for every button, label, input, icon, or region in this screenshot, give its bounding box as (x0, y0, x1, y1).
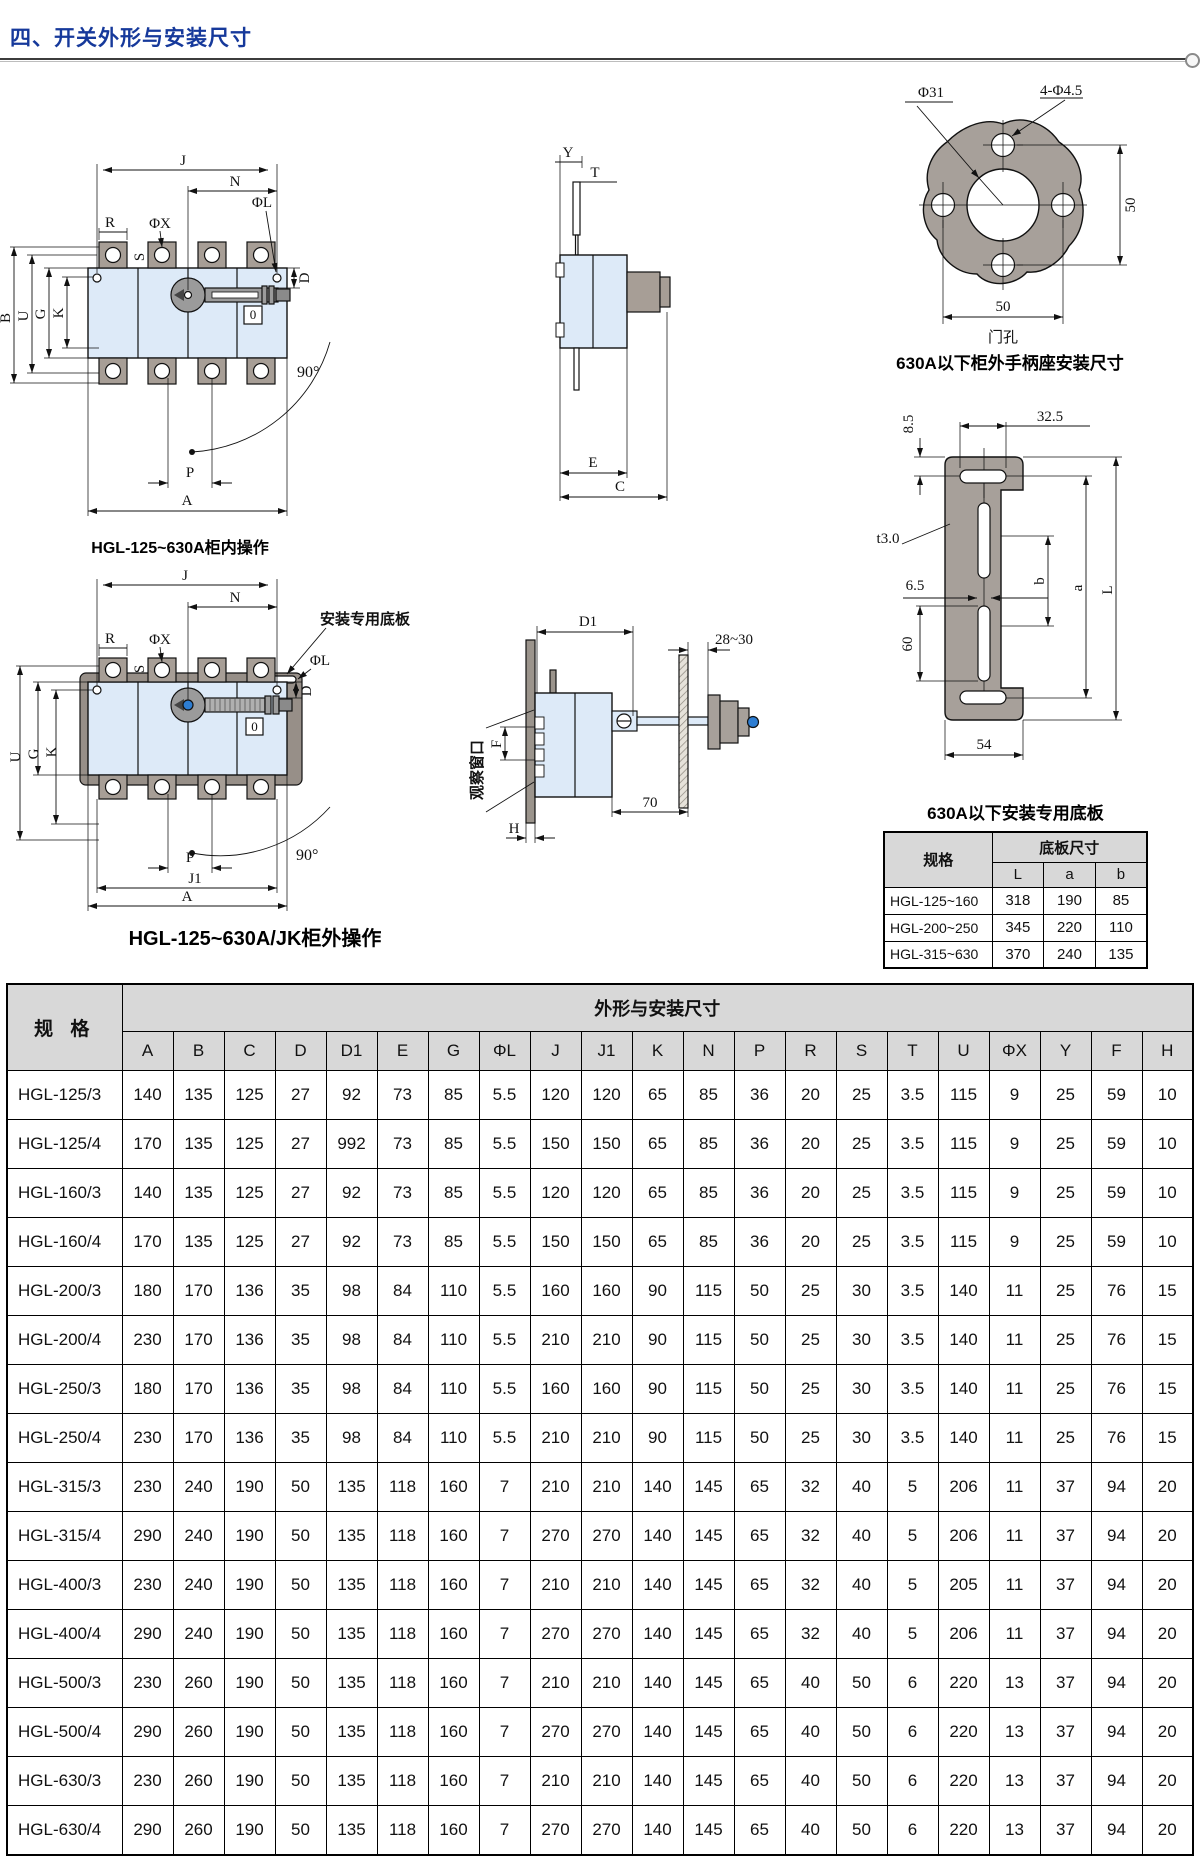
value-cell: 190 (224, 1463, 275, 1512)
spec-cell: HGL-630/4 (7, 1806, 122, 1855)
dim-E: E (588, 455, 597, 471)
column-header: N (683, 1032, 734, 1071)
value-cell: 3.5 (887, 1218, 938, 1267)
column-header: ΦX (989, 1032, 1040, 1071)
dim-J: J (180, 153, 186, 169)
value-cell: 6 (887, 1708, 938, 1757)
value-cell: 135 (1095, 941, 1147, 968)
value-cell: 6 (887, 1659, 938, 1708)
value-cell: 11 (989, 1365, 1040, 1414)
column-header: ΦL (479, 1032, 530, 1071)
value-cell: 115 (683, 1365, 734, 1414)
value-cell: 76 (1091, 1267, 1142, 1316)
value-cell: 9 (989, 1071, 1040, 1120)
column-header: a (1044, 862, 1096, 887)
table-row: HGL-160/4170135125279273855.515015065853… (7, 1218, 1193, 1267)
dim-G: G (33, 308, 49, 319)
column-header-dimensions: 外形与安装尺寸 (122, 984, 1193, 1032)
value-cell: 210 (530, 1463, 581, 1512)
value-cell: 210 (581, 1659, 632, 1708)
value-cell: 59 (1091, 1218, 1142, 1267)
value-cell: 270 (581, 1708, 632, 1757)
value-cell: 20 (785, 1120, 836, 1169)
dim-8-5: 8.5 (901, 415, 917, 434)
header-row-1: 规 格外形与安装尺寸 (7, 984, 1193, 1032)
dim-phiL: ΦL (252, 195, 272, 211)
mounting-plate-label: 安装专用底板 (320, 610, 411, 628)
value-cell: 7 (479, 1610, 530, 1659)
table-row: HGL-315/42902401905013511816072702701401… (7, 1512, 1193, 1561)
value-cell: 50 (275, 1708, 326, 1757)
value-cell: 90 (632, 1414, 683, 1463)
value-cell: 25 (1040, 1316, 1091, 1365)
value-cell: 25 (785, 1365, 836, 1414)
value-cell: 40 (836, 1512, 887, 1561)
value-cell: 20 (1142, 1757, 1193, 1806)
value-cell: 3.5 (887, 1071, 938, 1120)
table-row: HGL-500/42902601905013511816072702701401… (7, 1708, 1193, 1757)
value-cell: 65 (734, 1708, 785, 1757)
value-cell: 160 (530, 1365, 581, 1414)
dim-T: T (590, 165, 599, 181)
value-cell: 270 (581, 1806, 632, 1855)
value-cell: 25 (1040, 1414, 1091, 1463)
value-cell: 37 (1040, 1806, 1091, 1855)
value-cell: 20 (1142, 1708, 1193, 1757)
value-cell: 206 (938, 1463, 989, 1512)
value-cell: 145 (683, 1561, 734, 1610)
column-header: D (275, 1032, 326, 1071)
value-cell: 170 (122, 1218, 173, 1267)
value-cell: 76 (1091, 1414, 1142, 1463)
value-cell: 3.5 (887, 1414, 938, 1463)
value-cell: 94 (1091, 1659, 1142, 1708)
value-cell: 230 (122, 1316, 173, 1365)
value-cell: 5 (887, 1512, 938, 1561)
value-cell: 94 (1091, 1806, 1142, 1855)
value-cell: 50 (734, 1316, 785, 1365)
dim-J1: J1 (188, 871, 201, 887)
spec-cell: HGL-250/4 (7, 1414, 122, 1463)
value-cell: 50 (275, 1659, 326, 1708)
value-cell: 15 (1142, 1414, 1193, 1463)
column-header-size: 底板尺寸 (992, 832, 1147, 862)
dim-D: D (299, 685, 315, 696)
value-cell: 115 (683, 1267, 734, 1316)
value-cell: 145 (683, 1757, 734, 1806)
value-cell: 5 (887, 1561, 938, 1610)
value-cell: 110 (1095, 914, 1147, 941)
caption-incabinet: HGL-125~630A柜内操作 (55, 534, 305, 558)
value-cell: 135 (326, 1561, 377, 1610)
value-cell: 65 (734, 1610, 785, 1659)
value-cell: 136 (224, 1267, 275, 1316)
value-cell: 32 (785, 1610, 836, 1659)
value-cell: 290 (122, 1512, 173, 1561)
value-cell: 118 (377, 1757, 428, 1806)
value-cell: 25 (1040, 1365, 1091, 1414)
value-cell: 140 (938, 1267, 989, 1316)
value-cell: 7 (479, 1512, 530, 1561)
value-cell: 135 (326, 1512, 377, 1561)
value-cell: 270 (530, 1610, 581, 1659)
value-cell: 118 (377, 1806, 428, 1855)
dim-54: 54 (977, 737, 993, 753)
value-cell: 180 (122, 1267, 173, 1316)
value-cell: 290 (122, 1806, 173, 1855)
value-cell: 11 (989, 1561, 1040, 1610)
value-cell: 3.5 (887, 1316, 938, 1365)
value-cell: 90 (632, 1365, 683, 1414)
column-header: H (1142, 1032, 1193, 1071)
value-cell: 145 (683, 1610, 734, 1659)
value-cell: 37 (1040, 1610, 1091, 1659)
base-plate-table-title: 630A以下安装专用底板 (873, 799, 1158, 824)
value-cell: 94 (1091, 1708, 1142, 1757)
value-cell: 98 (326, 1316, 377, 1365)
value-cell: 115 (938, 1169, 989, 1218)
value-cell: 210 (581, 1757, 632, 1806)
caption-jk-outside: HGL-125~630A/JK柜外操作 (45, 922, 465, 951)
value-cell: 25 (785, 1267, 836, 1316)
value-cell: 11 (989, 1267, 1040, 1316)
value-cell: 9 (989, 1218, 1040, 1267)
spec-cell: HGL-125/3 (7, 1071, 122, 1120)
value-cell: 5.5 (479, 1169, 530, 1218)
table-row: HGL-200~250345220110 (884, 914, 1147, 941)
value-cell: 40 (785, 1708, 836, 1757)
value-cell: 118 (377, 1659, 428, 1708)
value-cell: 210 (530, 1316, 581, 1365)
value-cell: 140 (632, 1512, 683, 1561)
value-cell: 25 (1040, 1120, 1091, 1169)
value-cell: 92 (326, 1218, 377, 1267)
value-cell: 140 (632, 1659, 683, 1708)
value-cell: 59 (1091, 1120, 1142, 1169)
value-cell: 118 (377, 1463, 428, 1512)
value-cell: 270 (581, 1512, 632, 1561)
value-cell: 210 (581, 1561, 632, 1610)
value-cell: 73 (377, 1120, 428, 1169)
column-header: E (377, 1032, 428, 1071)
value-cell: 65 (734, 1659, 785, 1708)
value-cell: 160 (428, 1708, 479, 1757)
value-cell: 220 (1044, 914, 1096, 941)
value-cell: 85 (1095, 887, 1147, 914)
value-cell: 40 (836, 1463, 887, 1512)
value-cell: 85 (428, 1218, 479, 1267)
value-cell: 25 (836, 1169, 887, 1218)
value-cell: 27 (275, 1071, 326, 1120)
value-cell: 270 (581, 1610, 632, 1659)
value-cell: 50 (734, 1365, 785, 1414)
value-cell: 59 (1091, 1169, 1142, 1218)
value-cell: 125 (224, 1169, 275, 1218)
value-cell: 50 (275, 1463, 326, 1512)
dim-angle: 90° (296, 847, 318, 864)
value-cell: 140 (122, 1169, 173, 1218)
value-cell: 85 (683, 1120, 734, 1169)
value-cell: 240 (173, 1561, 224, 1610)
value-cell: 65 (632, 1071, 683, 1120)
spec-cell: HGL-315~630 (884, 941, 992, 968)
spec-cell: HGL-160/4 (7, 1218, 122, 1267)
value-cell: 270 (530, 1806, 581, 1855)
value-cell: 65 (734, 1561, 785, 1610)
value-cell: 115 (683, 1316, 734, 1365)
dim-A: A (182, 493, 193, 509)
value-cell: 65 (734, 1806, 785, 1855)
value-cell: 115 (938, 1218, 989, 1267)
value-cell: 115 (938, 1120, 989, 1169)
value-cell: 135 (326, 1463, 377, 1512)
value-cell: 65 (734, 1757, 785, 1806)
value-cell: 220 (938, 1757, 989, 1806)
value-cell: 7 (479, 1806, 530, 1855)
value-cell: 140 (632, 1610, 683, 1659)
spec-cell: HGL-200/4 (7, 1316, 122, 1365)
value-cell: 30 (836, 1316, 887, 1365)
value-cell: 32 (785, 1561, 836, 1610)
handle-blue-dot (183, 700, 193, 710)
value-cell: 20 (1142, 1463, 1193, 1512)
value-cell: 125 (224, 1071, 275, 1120)
dim-C: C (615, 479, 625, 495)
value-cell: 135 (326, 1757, 377, 1806)
value-cell: 118 (377, 1561, 428, 1610)
value-cell: 115 (938, 1071, 989, 1120)
value-cell: 20 (785, 1218, 836, 1267)
value-cell: 20 (785, 1071, 836, 1120)
value-cell: 10 (1142, 1218, 1193, 1267)
value-cell: 85 (683, 1071, 734, 1120)
main-dimensions-table: 规 格外形与安装尺寸ABCDD1EGΦLJJ1KNPRSTUΦXYFH HGL-… (6, 983, 1194, 1856)
value-cell: 145 (683, 1806, 734, 1855)
value-cell: 36 (734, 1071, 785, 1120)
value-cell: 3.5 (887, 1120, 938, 1169)
value-cell: 5.5 (479, 1218, 530, 1267)
spec-cell: HGL-315/4 (7, 1512, 122, 1561)
value-cell: 7 (479, 1708, 530, 1757)
table-row: HGL-630/32302601905013511816072102101401… (7, 1757, 1193, 1806)
table-row: HGL-250/42301701363598841105.52102109011… (7, 1414, 1193, 1463)
value-cell: 85 (428, 1169, 479, 1218)
value-cell: 160 (581, 1365, 632, 1414)
drawing-switch-side: Y T E C (535, 100, 705, 515)
dim-phi31: Φ31 (918, 85, 944, 101)
value-cell: 85 (428, 1120, 479, 1169)
value-cell: 20 (1142, 1512, 1193, 1561)
value-cell: 135 (326, 1806, 377, 1855)
value-cell: 40 (785, 1806, 836, 1855)
value-cell: 135 (326, 1708, 377, 1757)
value-cell: 110 (428, 1316, 479, 1365)
value-cell: 85 (683, 1218, 734, 1267)
table-row: HGL-400/32302401905013511816072102101401… (7, 1561, 1193, 1610)
value-cell: 220 (938, 1806, 989, 1855)
value-cell: 205 (938, 1561, 989, 1610)
value-cell: 20 (785, 1169, 836, 1218)
value-cell: 25 (785, 1414, 836, 1463)
column-header: J1 (581, 1032, 632, 1071)
header-row-2: ABCDD1EGΦLJJ1KNPRSTUΦXYFH (7, 1032, 1193, 1071)
value-cell: 240 (173, 1610, 224, 1659)
value-cell: 150 (581, 1218, 632, 1267)
value-cell: 65 (632, 1169, 683, 1218)
value-cell: 190 (224, 1610, 275, 1659)
table-row: HGL-200/31801701363598841105.51601609011… (7, 1267, 1193, 1316)
dim-Y: Y (563, 145, 574, 161)
value-cell: 76 (1091, 1316, 1142, 1365)
value-cell: 35 (275, 1316, 326, 1365)
value-cell: 7 (479, 1659, 530, 1708)
value-cell: 59 (1091, 1071, 1142, 1120)
value-cell: 50 (734, 1267, 785, 1316)
value-cell: 136 (224, 1316, 275, 1365)
table-row: HGL-315/32302401905013511816072102101401… (7, 1463, 1193, 1512)
value-cell: 170 (173, 1414, 224, 1463)
value-cell: 25 (836, 1120, 887, 1169)
value-cell: 140 (938, 1414, 989, 1463)
value-cell: 140 (938, 1365, 989, 1414)
spec-cell: HGL-250/3 (7, 1365, 122, 1414)
value-cell: 7 (479, 1561, 530, 1610)
value-cell: 140 (632, 1463, 683, 1512)
value-cell: 145 (683, 1512, 734, 1561)
value-cell: 37 (1040, 1561, 1091, 1610)
value-cell: 240 (173, 1463, 224, 1512)
value-cell: 140 (938, 1316, 989, 1365)
value-cell: 120 (530, 1071, 581, 1120)
value-cell: 5.5 (479, 1267, 530, 1316)
value-cell: 5 (887, 1610, 938, 1659)
spec-cell: HGL-200/3 (7, 1267, 122, 1316)
value-cell: 260 (173, 1806, 224, 1855)
dim-28-30: 28~30 (715, 632, 753, 648)
value-cell: 30 (836, 1267, 887, 1316)
value-cell: 160 (428, 1561, 479, 1610)
value-cell: 40 (785, 1659, 836, 1708)
dim-N: N (230, 174, 241, 190)
dim-L: L (1100, 585, 1116, 594)
value-cell: 37 (1040, 1512, 1091, 1561)
value-cell: 118 (377, 1512, 428, 1561)
base-plate-table-body: HGL-125~16031819085HGL-200~250345220110H… (884, 887, 1147, 968)
base-plate-edge (526, 640, 535, 823)
dim-50-vertical: 50 (1123, 198, 1139, 213)
value-cell: 230 (122, 1561, 173, 1610)
value-cell: 150 (530, 1120, 581, 1169)
dim-70: 70 (643, 795, 658, 811)
dim-b: b (1032, 577, 1048, 585)
dim-J: J (182, 568, 188, 584)
value-cell: 3.5 (887, 1365, 938, 1414)
column-header: S (836, 1032, 887, 1071)
value-cell: 90 (632, 1316, 683, 1365)
value-cell: 92 (326, 1169, 377, 1218)
handle-zero-mark: 0 (251, 719, 258, 734)
value-cell: 118 (377, 1708, 428, 1757)
value-cell: 40 (785, 1757, 836, 1806)
value-cell: 145 (683, 1659, 734, 1708)
spec-cell: HGL-125/4 (7, 1120, 122, 1169)
value-cell: 6 (887, 1757, 938, 1806)
value-cell: 136 (224, 1414, 275, 1463)
dim-60: 60 (900, 637, 916, 652)
value-cell: 118 (377, 1610, 428, 1659)
value-cell: 180 (122, 1365, 173, 1414)
value-cell: 120 (530, 1169, 581, 1218)
value-cell: 84 (377, 1267, 428, 1316)
drawing-handle-seat: Φ31 4-Φ4.5 50 50 门孔 (885, 62, 1200, 362)
spec-cell: HGL-500/3 (7, 1659, 122, 1708)
value-cell: 13 (989, 1806, 1040, 1855)
value-cell: 50 (275, 1610, 326, 1659)
value-cell: 84 (377, 1316, 428, 1365)
value-cell: 160 (530, 1267, 581, 1316)
value-cell: 140 (122, 1071, 173, 1120)
value-cell: 9 (989, 1120, 1040, 1169)
value-cell: 92 (326, 1071, 377, 1120)
value-cell: 160 (428, 1659, 479, 1708)
value-cell: 260 (173, 1757, 224, 1806)
value-cell: 136 (224, 1365, 275, 1414)
column-header: K (632, 1032, 683, 1071)
dim-4phi45: 4-Φ4.5 (1040, 83, 1082, 99)
value-cell: 73 (377, 1169, 428, 1218)
column-header: D1 (326, 1032, 377, 1071)
dim-D1: D1 (579, 614, 597, 630)
value-cell: 25 (836, 1071, 887, 1120)
column-header: T (887, 1032, 938, 1071)
column-header: C (224, 1032, 275, 1071)
value-cell: 11 (989, 1610, 1040, 1659)
value-cell: 160 (428, 1757, 479, 1806)
table-row: HGL-630/42902601905013511816072702701401… (7, 1806, 1193, 1855)
value-cell: 94 (1091, 1561, 1142, 1610)
dim-6-5: 6.5 (906, 578, 925, 594)
value-cell: 150 (581, 1120, 632, 1169)
value-cell: 50 (836, 1757, 887, 1806)
column-header-spec: 规格 (884, 832, 992, 887)
dim-phiL: ΦL (310, 653, 330, 669)
dim-t3: t3.0 (877, 531, 900, 547)
dim-G: G (26, 748, 42, 759)
value-cell: 160 (428, 1512, 479, 1561)
spec-cell: HGL-400/4 (7, 1610, 122, 1659)
value-cell: 27 (275, 1169, 326, 1218)
column-header: b (1095, 862, 1147, 887)
value-cell: 206 (938, 1512, 989, 1561)
value-cell: 210 (530, 1757, 581, 1806)
value-cell: 27 (275, 1120, 326, 1169)
base-plate-table-head: 规格底板尺寸Lab (884, 832, 1147, 887)
value-cell: 73 (377, 1218, 428, 1267)
value-cell: 76 (1091, 1365, 1142, 1414)
dim-F: F (489, 740, 505, 748)
caption-handle-seat: 630A以下柜外手柄座安装尺寸 (845, 349, 1175, 374)
column-header: G (428, 1032, 479, 1071)
value-cell: 65 (632, 1120, 683, 1169)
value-cell: 206 (938, 1610, 989, 1659)
value-cell: 90 (632, 1267, 683, 1316)
dim-D: D (297, 272, 313, 283)
value-cell: 6 (887, 1806, 938, 1855)
table-row: HGL-200/42301701363598841105.52102109011… (7, 1316, 1193, 1365)
value-cell: 110 (428, 1365, 479, 1414)
spec-cell: HGL-125~160 (884, 887, 992, 914)
value-cell: 115 (683, 1414, 734, 1463)
